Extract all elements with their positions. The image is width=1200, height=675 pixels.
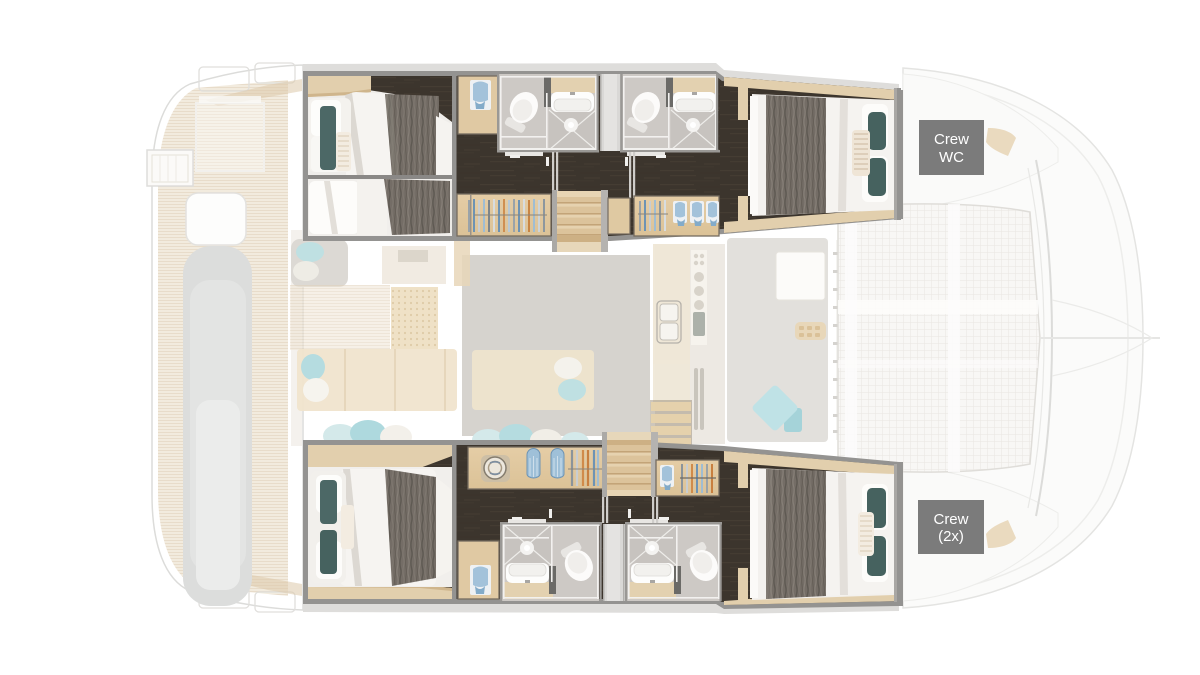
svg-text:Crew: Crew bbox=[933, 511, 968, 528]
svg-text:Crew: Crew bbox=[934, 131, 969, 148]
svg-text:(2x): (2x) bbox=[938, 528, 964, 545]
svg-text:WC: WC bbox=[939, 149, 964, 166]
